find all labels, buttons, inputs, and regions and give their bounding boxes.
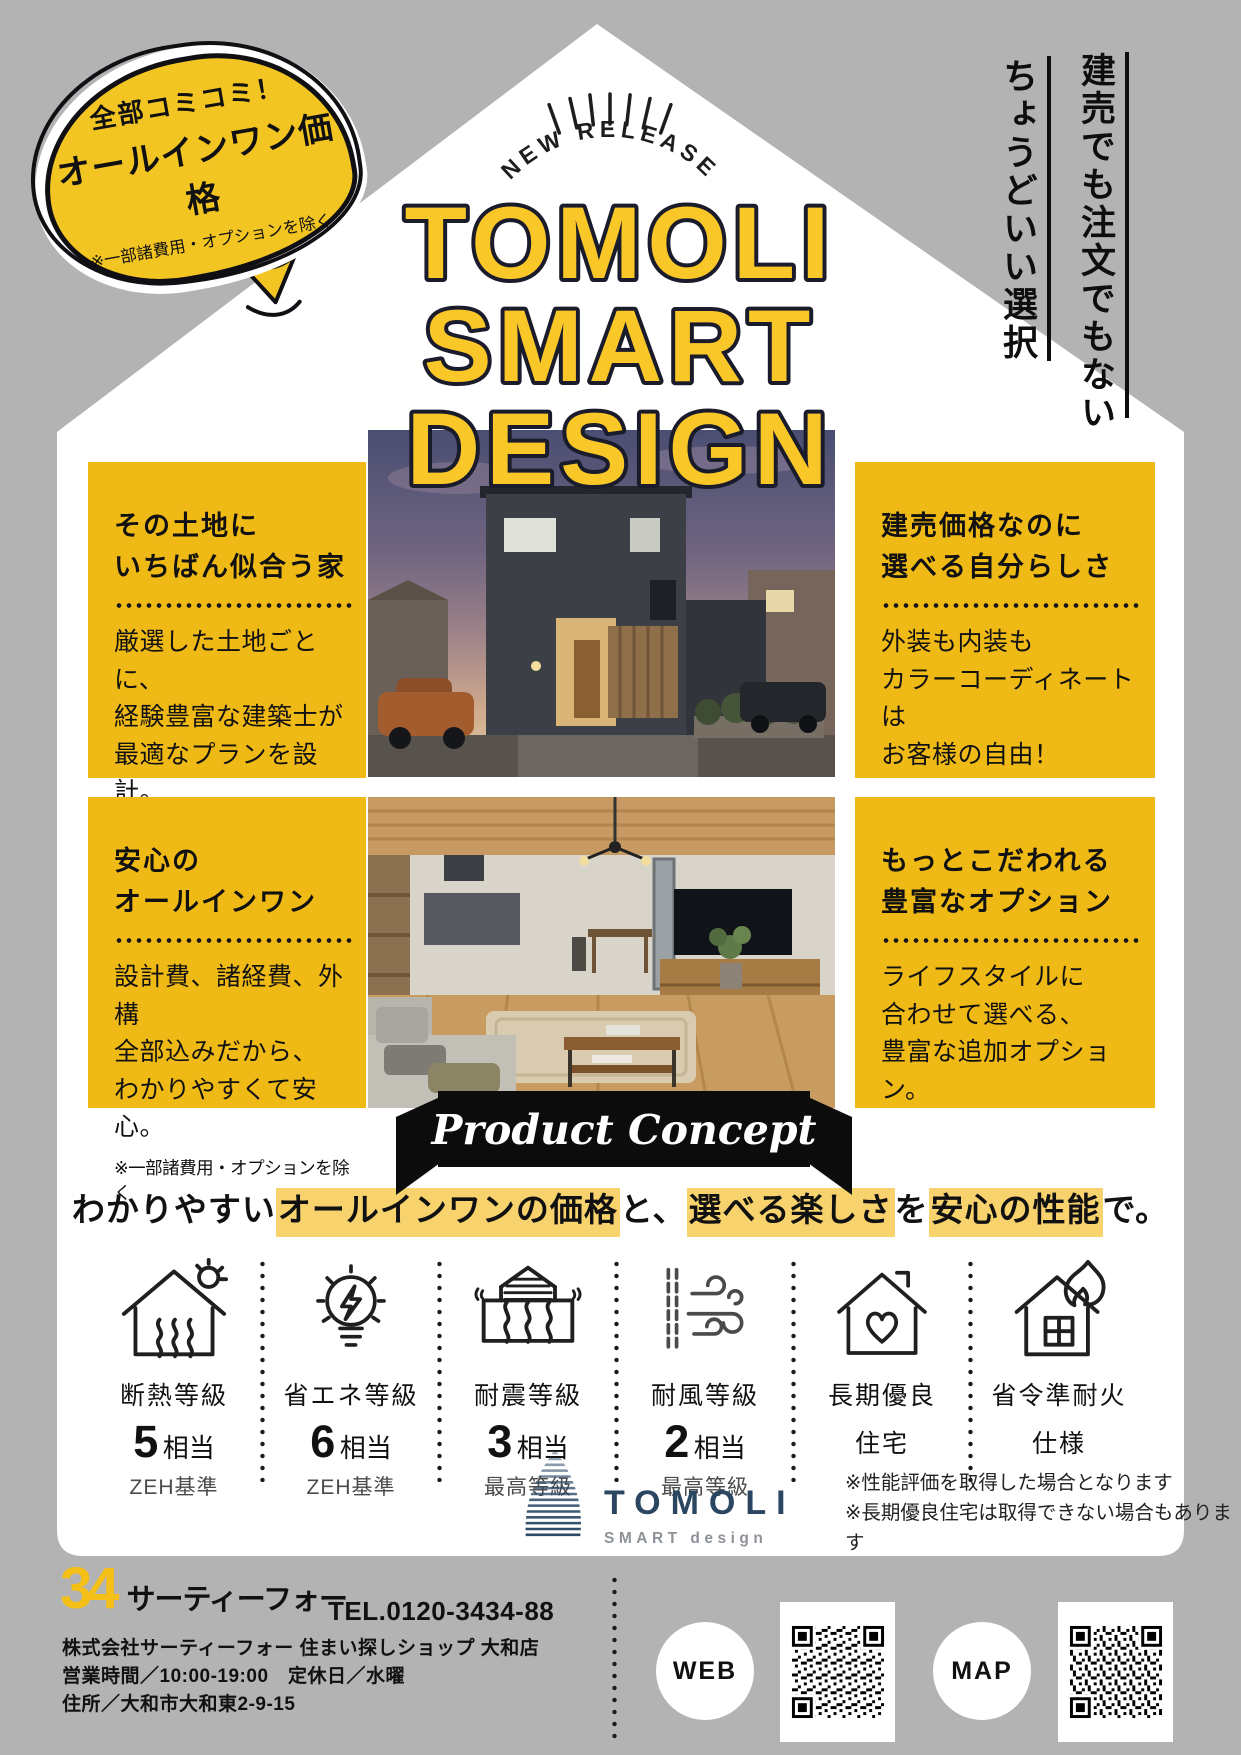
- body-line: 経験豊富な建築士が: [114, 699, 356, 737]
- feature-box-color: 建売価格なのに 選べる自分らしさ 外装も内装も カラーコーディネートは お客様の…: [855, 462, 1155, 778]
- feature-title-line: いちばん似合う家: [114, 547, 356, 588]
- dotted-divider: [114, 938, 352, 943]
- vertical-rule-left: [1047, 56, 1051, 361]
- spec-rating: 5 相当: [88, 1416, 260, 1468]
- body-line: 外装も内装も: [881, 624, 1145, 662]
- feature-box-body: 厳選した土地ごとに、 経験豊富な建築士が 最適なプランを設計。: [114, 624, 356, 812]
- feature-box-allinone: 安心の オールインワン 設計費、諸経費、外構 全部込みだから、 わかりやすくて安…: [88, 797, 366, 1108]
- spec-rating: 6 相当: [265, 1416, 437, 1468]
- feature-box-title: その土地に いちばん似合う家: [114, 506, 356, 587]
- dotted-divider: [114, 603, 352, 608]
- spec-notes: ※性能評価を取得した場合となります ※長期優良住宅は取得できない場合もあります: [845, 1468, 1241, 1559]
- tagline-segment: わかりやすい: [72, 1191, 276, 1228]
- body-line: 合わせて選べる、: [881, 997, 1145, 1035]
- interior-photo: [368, 797, 835, 1108]
- spec-note-line: ※長期優良住宅は取得できない場合もあります: [845, 1498, 1241, 1558]
- feature-box-land: その土地に いちばん似合う家 厳選した土地ごとに、 経験豊富な建築士が 最適なプ…: [88, 462, 366, 778]
- spec-name: 断熱等級: [88, 1376, 260, 1412]
- feature-box-title: もっとこだわれる 豊富なオプション: [881, 841, 1145, 922]
- brand-name: サーティーフォー: [127, 1576, 348, 1618]
- logo-name: TOMOLI: [604, 1484, 796, 1523]
- feature-title-line: 安心の: [114, 841, 356, 882]
- spec-name-line2: 仕様: [973, 1424, 1145, 1460]
- feature-box-title: 建売価格なのに 選べる自分らしさ: [881, 506, 1145, 587]
- feature-title-line: オールインワン: [114, 882, 356, 923]
- feature-box-options: もっとこだわれる 豊富なオプション ライフスタイルに 合わせて選べる、 豊富な追…: [855, 797, 1155, 1108]
- spec-name: 耐震等級: [442, 1376, 614, 1412]
- qr-code-map[interactable]: [1058, 1602, 1173, 1742]
- flyer-page: 全部コミコミ！ オールインワン価格 ※一部諸費用・オプションを除く 建売でも注文…: [0, 0, 1241, 1755]
- exterior-photo: [368, 430, 835, 777]
- feature-title-line: 建売価格なのに: [881, 506, 1145, 547]
- feature-box-body: 外装も内装も カラーコーディネートは お客様の自由！: [881, 624, 1145, 774]
- spec-sub: ZEH基準: [88, 1471, 260, 1501]
- vertical-copy-right: 建売でも注文でもない: [1070, 52, 1121, 432]
- quake-building-icon: [442, 1252, 614, 1364]
- spec-name-line2: 住宅: [796, 1424, 968, 1460]
- ribbon-label: Product Concept: [431, 1106, 817, 1154]
- body-line: 厳選した土地ごとに、: [114, 624, 356, 699]
- wind-icon: [619, 1252, 791, 1364]
- energy-bulb-icon: [265, 1252, 437, 1364]
- address-line: 住所／大和市大和東2-9-15: [62, 1689, 295, 1716]
- spec-name: 省エネ等級: [265, 1376, 437, 1412]
- vertical-copy-left: ちょうどいい選択: [992, 58, 1043, 378]
- fire-house-icon: [973, 1252, 1145, 1364]
- thirtyfour-logo-icon: 34: [60, 1560, 115, 1618]
- feature-title-line: 選べる自分らしさ: [881, 547, 1145, 588]
- map-badge[interactable]: MAP: [933, 1622, 1031, 1720]
- heart-house-icon: [796, 1252, 968, 1364]
- qr-code-web[interactable]: [780, 1602, 895, 1742]
- logo-subtitle: SMART design: [604, 1530, 796, 1548]
- spec-unit: 相当: [163, 1433, 215, 1463]
- body-line: ライフスタイルに: [881, 959, 1145, 997]
- hours-line: 営業時間／10:00-19:00 定休日／水曜: [62, 1661, 405, 1688]
- map-label: MAP: [951, 1657, 1013, 1686]
- body-line: お客様の自由！: [881, 737, 1145, 775]
- spec-name: 耐風等級: [619, 1376, 791, 1412]
- body-line: 豊富な追加オプション。: [881, 1034, 1145, 1109]
- tomoli-logo: TOMOLI SMART design: [518, 1446, 796, 1548]
- vertical-rule-right: [1125, 52, 1129, 418]
- spec-value: 5: [133, 1416, 158, 1467]
- tagline-segment: で。: [1103, 1191, 1170, 1228]
- company-line: 株式会社サーティーフォー 住まい探しショップ 大和店: [62, 1633, 539, 1660]
- spec-value: 3: [487, 1416, 512, 1467]
- phone-number[interactable]: TEL.0120-3434-88: [328, 1596, 554, 1627]
- feature-box-body: ライフスタイルに 合わせて選べる、 豊富な追加オプション。: [881, 959, 1145, 1109]
- web-label: WEB: [673, 1657, 737, 1686]
- spec-longterm: 長期優良 住宅: [796, 1252, 968, 1460]
- spec-note-line: ※性能評価を取得した場合となります: [845, 1468, 1241, 1498]
- footer-dotted-divider: [612, 1574, 617, 1742]
- body-line: 全部込みだから、: [114, 1034, 356, 1072]
- feature-box-title: 安心の オールインワン: [114, 841, 356, 922]
- insulation-house-icon: [88, 1252, 260, 1364]
- product-concept-ribbon: Product Concept: [388, 1085, 860, 1203]
- tomoli-logo-mark-icon: [518, 1446, 588, 1540]
- spec-value: 6: [310, 1416, 335, 1467]
- spec-insulation: 断熱等級 5 相当 ZEH基準: [88, 1252, 260, 1501]
- feature-title-line: もっとこだわれる: [881, 841, 1145, 882]
- svg-text:NEW RELEASE: NEW RELEASE: [496, 116, 724, 184]
- tomoli-logo-text: TOMOLI SMART design: [604, 1484, 796, 1548]
- dotted-divider: [881, 938, 1141, 943]
- tagline-segment: を: [895, 1191, 929, 1228]
- feature-title-line: 豊富なオプション: [881, 882, 1145, 923]
- feature-box-body: 設計費、諸経費、外構 全部込みだから、 わかりやすくて安心。: [114, 959, 356, 1147]
- spec-energy: 省エネ等級 6 相当 ZEH基準: [265, 1252, 437, 1501]
- body-line: わかりやすくて安心。: [114, 1072, 356, 1147]
- spec-name: 省令準耐火: [973, 1376, 1145, 1412]
- tagline-segment-highlight: 安心の性能: [929, 1188, 1103, 1237]
- dotted-divider: [881, 603, 1141, 608]
- body-line: カラーコーディネートは: [881, 662, 1145, 737]
- spec-name: 長期優良: [796, 1376, 968, 1412]
- release-badge: NEW RELEASE: [496, 116, 724, 184]
- spec-fireproof: 省令準耐火 仕様: [973, 1252, 1145, 1460]
- feature-title-line: その土地に: [114, 506, 356, 547]
- spec-sub: ZEH基準: [265, 1471, 437, 1501]
- body-line: 設計費、諸経費、外構: [114, 959, 356, 1034]
- thirtyfour-brand: 34 サーティーフォー: [60, 1560, 347, 1618]
- spec-unit: 相当: [340, 1433, 392, 1463]
- new-release-arc: NEW RELEASE: [460, 72, 760, 200]
- web-badge[interactable]: WEB: [656, 1622, 754, 1720]
